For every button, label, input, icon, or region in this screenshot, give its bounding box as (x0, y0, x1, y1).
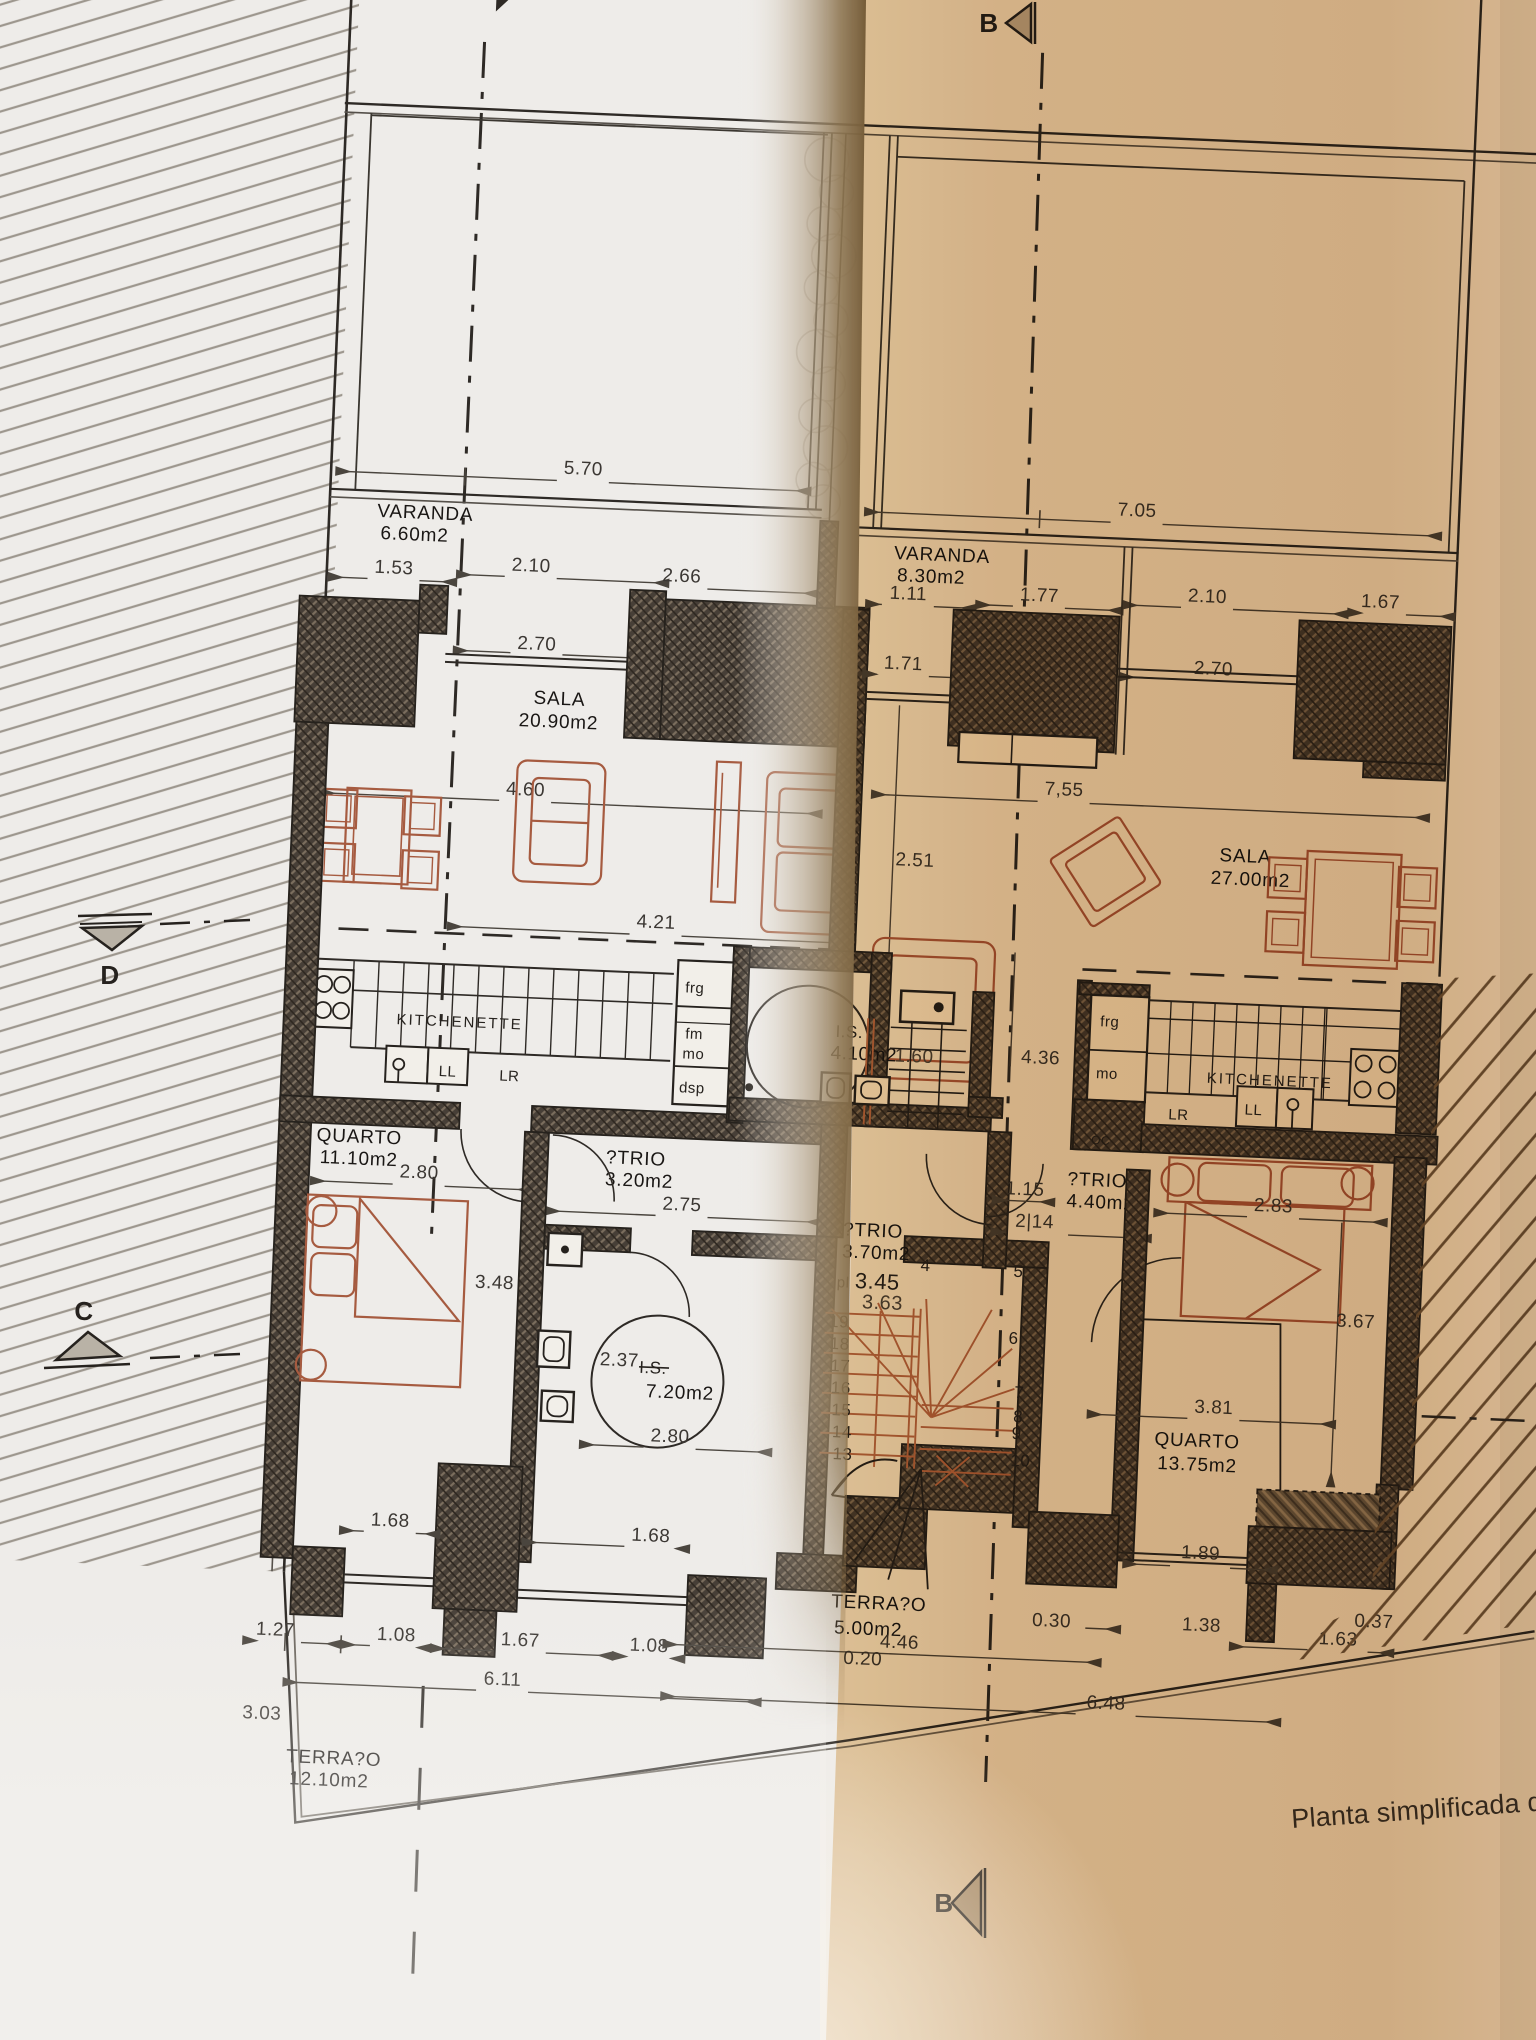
svg-text:fm: fm (685, 1025, 703, 1043)
svg-text:2.10: 2.10 (511, 555, 551, 578)
svg-text:VARANDA: VARANDA (377, 501, 474, 526)
svg-text:?TRIO: ?TRIO (606, 1147, 667, 1171)
svg-text:11.10m2: 11.10m2 (319, 1147, 398, 1171)
svg-text:2.75: 2.75 (662, 1194, 702, 1217)
svg-text:6.60m2: 6.60m2 (380, 523, 449, 547)
svg-text:2.80: 2.80 (399, 1161, 439, 1184)
svg-text:2.66: 2.66 (662, 565, 702, 588)
svg-text:4.21: 4.21 (636, 911, 676, 934)
svg-text:2.80: 2.80 (650, 1425, 690, 1448)
svg-text:1.53: 1.53 (374, 557, 414, 580)
svg-text:LL: LL (438, 1063, 456, 1081)
svg-text:dsp: dsp (679, 1079, 705, 1097)
svg-text:1.68: 1.68 (631, 1525, 671, 1548)
svg-text:SALA: SALA (533, 688, 586, 711)
svg-text:frg: frg (685, 979, 705, 997)
svg-text:D: D (100, 960, 119, 990)
svg-text:5.70: 5.70 (563, 458, 603, 481)
svg-text:LR: LR (499, 1068, 520, 1086)
svg-text:C: C (74, 1296, 93, 1326)
svg-text:mo: mo (682, 1045, 705, 1063)
svg-text:4.60: 4.60 (506, 779, 546, 802)
svg-text:2.37: 2.37 (599, 1349, 639, 1372)
svg-text:1.68: 1.68 (370, 1509, 410, 1532)
svg-text:7.20m2: 7.20m2 (645, 1381, 714, 1405)
svg-text:3.20m2: 3.20m2 (605, 1169, 674, 1193)
svg-text:20.90m2: 20.90m2 (518, 710, 598, 734)
svg-text:QUARTO: QUARTO (316, 1125, 402, 1150)
svg-text:3.48: 3.48 (475, 1272, 515, 1295)
svg-text:2.70: 2.70 (517, 633, 557, 656)
